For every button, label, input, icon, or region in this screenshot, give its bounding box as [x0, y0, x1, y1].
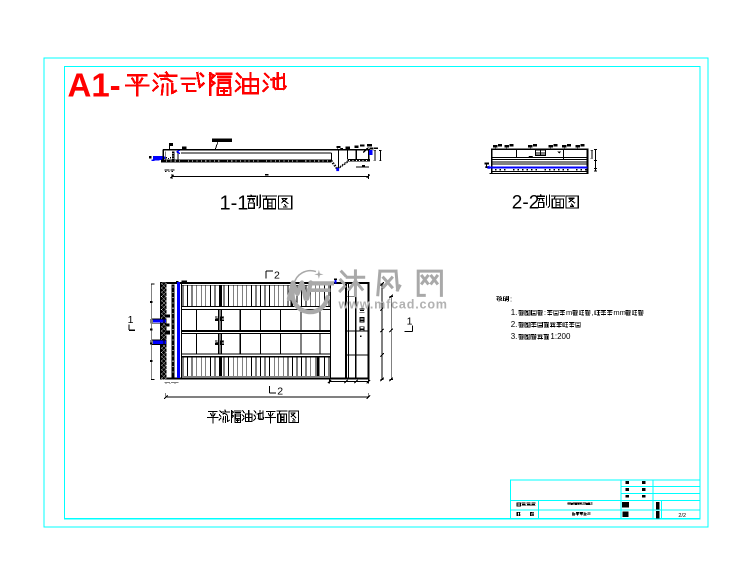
svg-text::: :: [510, 294, 512, 303]
svg-text:1-1: 1-1: [220, 192, 249, 214]
svg-text:m: m: [566, 308, 572, 317]
svg-text:3.: 3.: [511, 332, 518, 341]
svg-text:www.mfcad.com: www.mfcad.com: [338, 297, 448, 311]
svg-text:1.: 1.: [511, 308, 518, 317]
svg-text:2: 2: [277, 385, 283, 397]
svg-text:mm: mm: [613, 308, 626, 317]
svg-text:1:200: 1:200: [550, 332, 571, 341]
svg-text:1: 1: [407, 315, 413, 327]
svg-text:2/2: 2/2: [678, 513, 686, 519]
svg-text:A1-: A1-: [68, 67, 121, 104]
svg-text::: :: [544, 310, 546, 317]
svg-text:,: ,: [592, 310, 594, 317]
svg-text:2.: 2.: [511, 320, 518, 329]
svg-text:1: 1: [128, 314, 134, 326]
svg-text:2-2: 2-2: [512, 192, 539, 213]
svg-text:2: 2: [274, 269, 280, 281]
